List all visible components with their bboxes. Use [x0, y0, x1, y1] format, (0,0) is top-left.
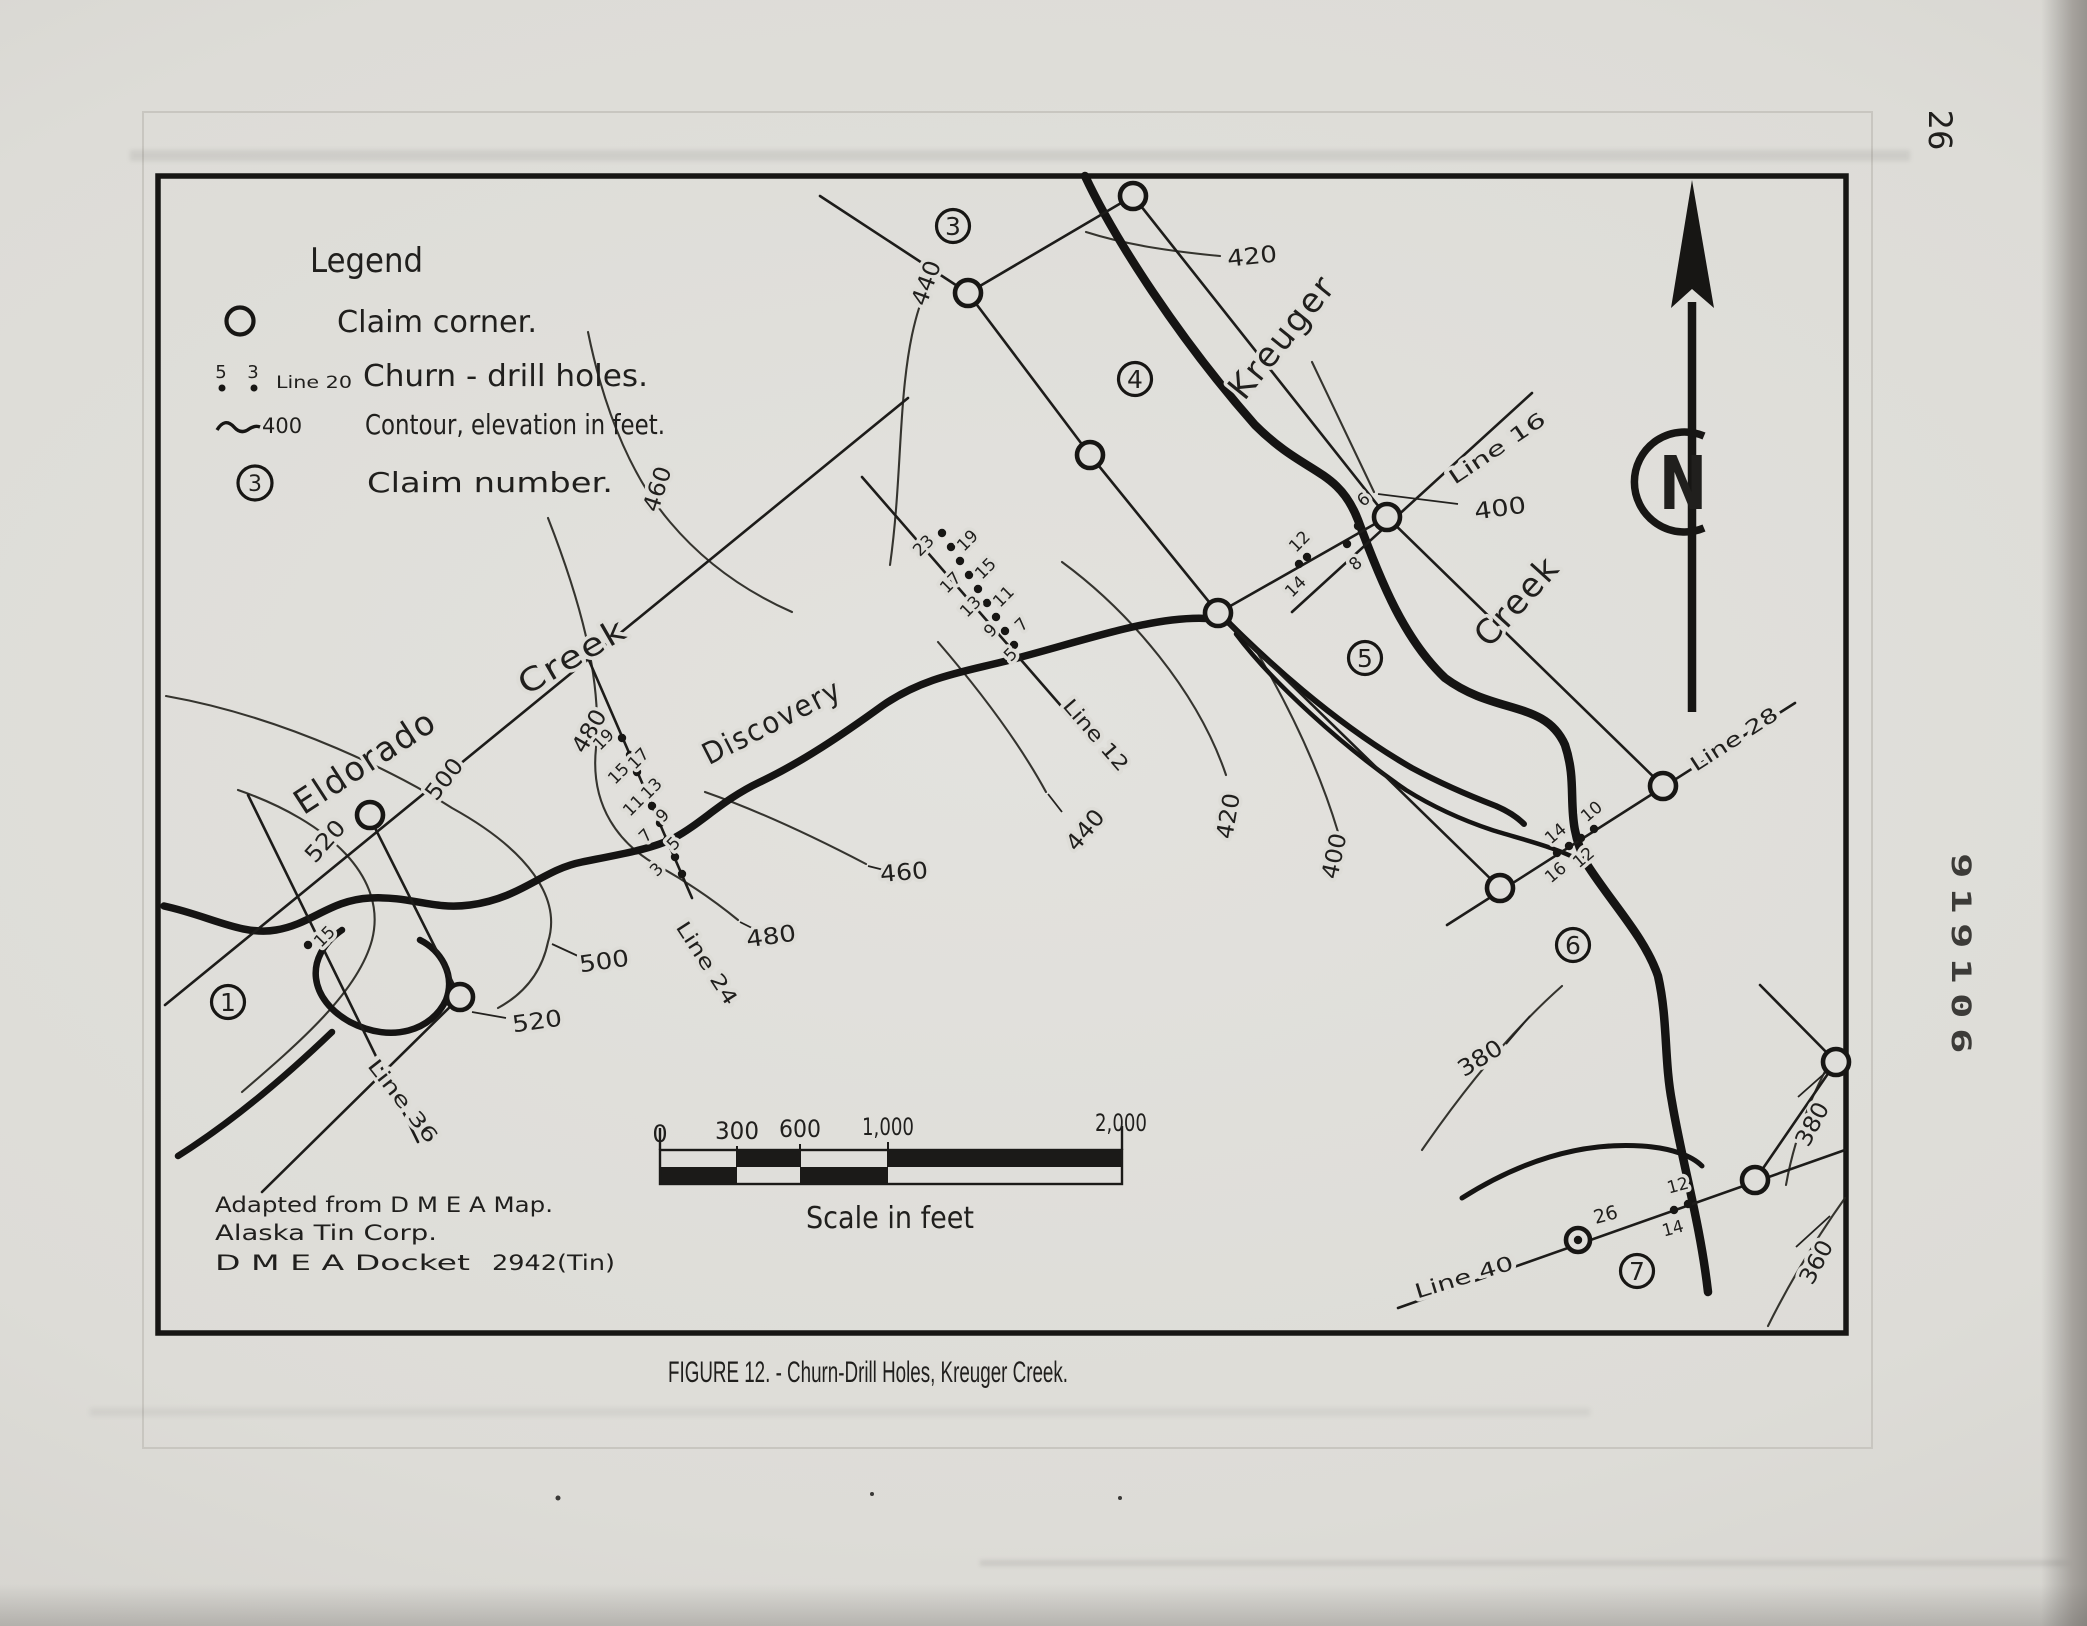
claim-number: 6: [1565, 931, 1581, 960]
docket-number: 2942(Tin): [492, 1251, 615, 1275]
hole-label: 13: [956, 592, 985, 621]
map-figure: 1 3 4 5 6 7 Eldorado Creek Discovery Kre…: [0, 0, 2087, 1626]
line-16-label: Line 16: [1444, 407, 1550, 490]
contour-squiggle-icon: [217, 423, 260, 432]
hole-label: 7: [1011, 614, 1033, 636]
drill-hole-labels: 23 19 15 11 7 17 13 9 5 19 15 11 7 3 17 …: [310, 489, 1691, 1242]
kreuger-creek-label: Creek: [1466, 548, 1568, 655]
hole-label: 11: [989, 582, 1018, 611]
contour-label: 360: [1795, 1236, 1840, 1289]
claim-corner-icon: [227, 308, 254, 335]
scan-speck: [1118, 1496, 1122, 1500]
scale-caption: Scale in feet: [806, 1201, 974, 1236]
legend-contour-label: Contour, elevation in feet.: [365, 408, 665, 441]
attribution-line: Adapted from D M E A Map.: [215, 1193, 553, 1217]
line-36-label: Line 36: [363, 1054, 443, 1148]
legend-claim-corner-label: Claim corner.: [337, 305, 537, 340]
claim-number: 4: [1127, 365, 1143, 394]
legend-claim-number-label: Claim number.: [367, 466, 613, 499]
hole-label: 15: [310, 922, 339, 951]
scan-streak: [980, 1560, 2080, 1566]
figure-caption: FIGURE 12. - Churn-Drill Holes, Kreuger …: [668, 1356, 1068, 1389]
legend: Legend Claim corner. 5 3 Line 20 Churn -…: [215, 241, 665, 500]
contour-label: 500: [578, 946, 631, 979]
scale-bar: 0 300 600 1,000 2,000 Scale in feet: [652, 1109, 1147, 1236]
scale-tick-label: 300: [715, 1117, 759, 1145]
drill-hole-dot-icon: [251, 385, 258, 392]
contour-label: 420: [1226, 241, 1278, 272]
drill-hole-dot-icon: [219, 385, 226, 392]
contour-label: 420: [1212, 791, 1246, 841]
contour-label: 400: [1317, 831, 1352, 881]
hole-label: 19: [953, 526, 982, 555]
eldorado-creek-label: Creek: [511, 610, 634, 703]
contour-label: 440: [1061, 805, 1110, 857]
attribution-line: D M E A Docket: [215, 1251, 470, 1275]
legend-claim-number-symbol: 3: [248, 472, 262, 497]
north-label: N: [1659, 441, 1707, 527]
survey-line-24: [588, 658, 692, 898]
attribution-line: Alaska Tin Corp.: [215, 1221, 437, 1245]
hole-label: 15: [971, 554, 1000, 583]
discovery-label: Discovery: [697, 672, 848, 772]
legend-contour-value: 400: [262, 414, 302, 438]
contour-elevation-labels: 440 420 460 480 500 520 520 500 480 460 …: [300, 241, 1839, 1288]
hole-label: 26: [1591, 1201, 1620, 1229]
legend-title: Legend: [310, 241, 423, 281]
kreuger-creek-channel: [1085, 176, 1708, 1292]
contour-label: 520: [511, 1006, 564, 1039]
line-24-label: Line 24: [671, 917, 743, 1010]
scale-tick-label: 2,000: [1095, 1109, 1147, 1137]
label-leaders: [472, 494, 1833, 1247]
north-arrow-icon: N: [1634, 180, 1714, 712]
claim-number: 5: [1357, 644, 1373, 673]
contour-label: 400: [1473, 492, 1528, 525]
scan-speck: [870, 1492, 874, 1496]
legend-drill-line-text: Line 20: [276, 373, 352, 393]
scan-streak: [90, 1408, 1590, 1416]
hole-label: 17: [936, 568, 965, 597]
line-28-label: Line 28: [1686, 702, 1783, 777]
line-40-label: Line 40: [1412, 1251, 1517, 1304]
contour-label: 380: [1453, 1035, 1507, 1082]
stamped-accession-number: 919106: [1945, 853, 1976, 1063]
hole-label: 3: [646, 859, 668, 881]
legend-drill-label: Churn - drill holes.: [363, 359, 648, 394]
slough-loop: [316, 930, 449, 1033]
side-channel: [1462, 1145, 1702, 1198]
legend-drill-number: 3: [247, 362, 258, 383]
claim-corner-circles: [357, 183, 1849, 1252]
attribution-note: Adapted from D M E A Map. Alaska Tin Cor…: [215, 1193, 615, 1275]
page-edge-shadow: [2041, 0, 2087, 1626]
scanned-page: 1 3 4 5 6 7 Eldorado Creek Discovery Kre…: [0, 0, 2087, 1626]
scan-streak: [130, 150, 1910, 161]
scan-speck: [556, 1496, 561, 1501]
scale-tick-label: 1,000: [862, 1113, 914, 1141]
page-number: 26: [1921, 110, 1959, 151]
claim-number: 1: [220, 988, 236, 1017]
claim-number: 7: [1629, 1257, 1645, 1286]
claim-number: 3: [945, 212, 961, 241]
line-12-label: Line 12: [1058, 694, 1134, 776]
contour-label: 440: [907, 257, 947, 309]
braided-channel: [1236, 634, 1586, 864]
contour-label: 460: [879, 858, 929, 888]
page-edge-shadow: [0, 1584, 2087, 1626]
hole-label: 10: [1577, 797, 1606, 826]
contour-label: 380: [1791, 1098, 1836, 1151]
hole-label: 12: [1285, 527, 1314, 556]
hole-label: 9: [652, 805, 674, 827]
hole-label: 8: [1345, 553, 1366, 575]
legend-drill-number: 5: [215, 362, 226, 383]
creek-branch: [178, 1032, 332, 1156]
contour-label: 460: [638, 463, 677, 515]
scale-tick-label: 0: [652, 1120, 667, 1148]
hole-label: 9: [980, 620, 1002, 642]
scale-tick-label: 600: [779, 1115, 821, 1143]
hole-label: 14: [1660, 1217, 1686, 1242]
contour-label: 480: [745, 921, 798, 954]
